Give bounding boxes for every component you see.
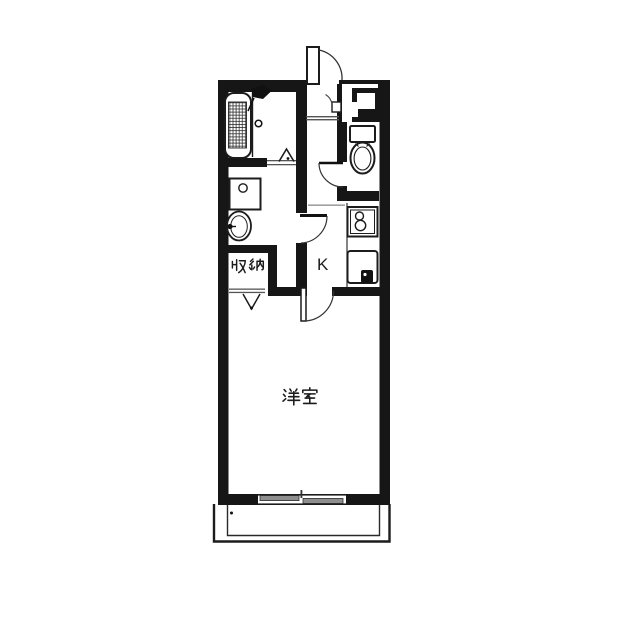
balcony — [214, 504, 390, 542]
wall-toilet-bottom — [337, 191, 379, 201]
label-kitchen: K — [317, 255, 329, 274]
wall-hall-upper — [296, 92, 307, 213]
bath-faucet-knob — [255, 120, 262, 127]
toilet-tank — [350, 126, 375, 142]
genkan-step-line2 — [306, 119, 339, 120]
wall-room-top-right — [332, 287, 390, 296]
storage-threshold-line — [229, 289, 265, 290]
entrance-alcove — [339, 80, 390, 122]
window-pane-left — [260, 496, 299, 501]
bathtub-hatch — [229, 102, 247, 148]
meter-box — [357, 93, 375, 109]
sink-faucet-dot — [363, 273, 366, 276]
wall-bottom-left — [218, 494, 258, 505]
shoe-cabinet — [332, 102, 341, 112]
washing-machine-drain — [239, 184, 247, 192]
room-door-leaf — [301, 288, 306, 321]
background — [0, 0, 640, 640]
wall-room-top-left — [268, 287, 301, 296]
sink-faucet — [361, 270, 373, 283]
genkan-step-line — [306, 116, 339, 117]
wall-bath-washroom — [222, 158, 267, 167]
window-pane-right — [303, 498, 343, 503]
bath-threshold-line — [267, 160, 296, 161]
storage-door-dot — [250, 307, 253, 310]
bathroom-door-dot — [287, 157, 290, 160]
kitchen-threshold-line — [308, 205, 345, 206]
washing-machine-pan — [230, 179, 261, 210]
floor-plan-canvas: K — [0, 0, 640, 640]
storage-threshold-line2 — [229, 292, 265, 293]
bath-threshold-line2 — [267, 164, 296, 165]
floor-plan-drawing: K — [0, 0, 640, 640]
entrance-door-leaf — [307, 47, 319, 84]
alcove-step — [345, 102, 358, 117]
wall-bottom-right — [346, 494, 390, 505]
balcony-drain-mark — [230, 512, 233, 515]
window-center-tick — [301, 490, 303, 498]
two-burner-stove — [348, 207, 378, 237]
wall-washroom-storage — [222, 245, 268, 253]
